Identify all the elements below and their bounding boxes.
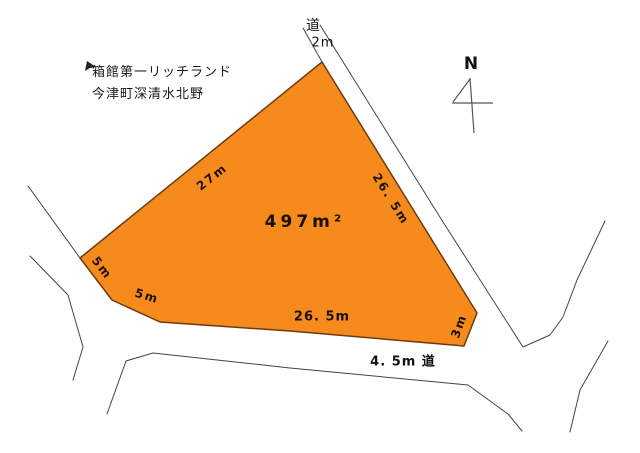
road-line-southeast bbox=[570, 341, 608, 432]
parcel-area-label: 497m² bbox=[265, 212, 346, 232]
title-line1: 箱館第一リッチランド bbox=[92, 62, 232, 84]
dimension-label-26-5m-south: 26. 5m bbox=[294, 310, 350, 325]
north-arrow-icon bbox=[452, 78, 493, 133]
top-road-name-label: 道 bbox=[306, 15, 320, 35]
title-block: 箱館第一リッチランド 今津町深清水北野 bbox=[92, 62, 232, 106]
north-label: N bbox=[464, 54, 478, 74]
bottom-road-label: 4. 5m 道 bbox=[370, 351, 436, 370]
road-line-northwest-upper bbox=[28, 186, 80, 258]
land-plot-diagram: 箱館第一リッチランド 今津町深清水北野 道 2m N 27m 26. 5m 49… bbox=[0, 0, 640, 453]
road-line-bottom-boundary bbox=[107, 353, 522, 431]
road-line-northwest-lower bbox=[30, 256, 83, 380]
top-road-width-label: 2m bbox=[312, 36, 335, 51]
title-line2: 今津町深清水北野 bbox=[92, 84, 232, 106]
